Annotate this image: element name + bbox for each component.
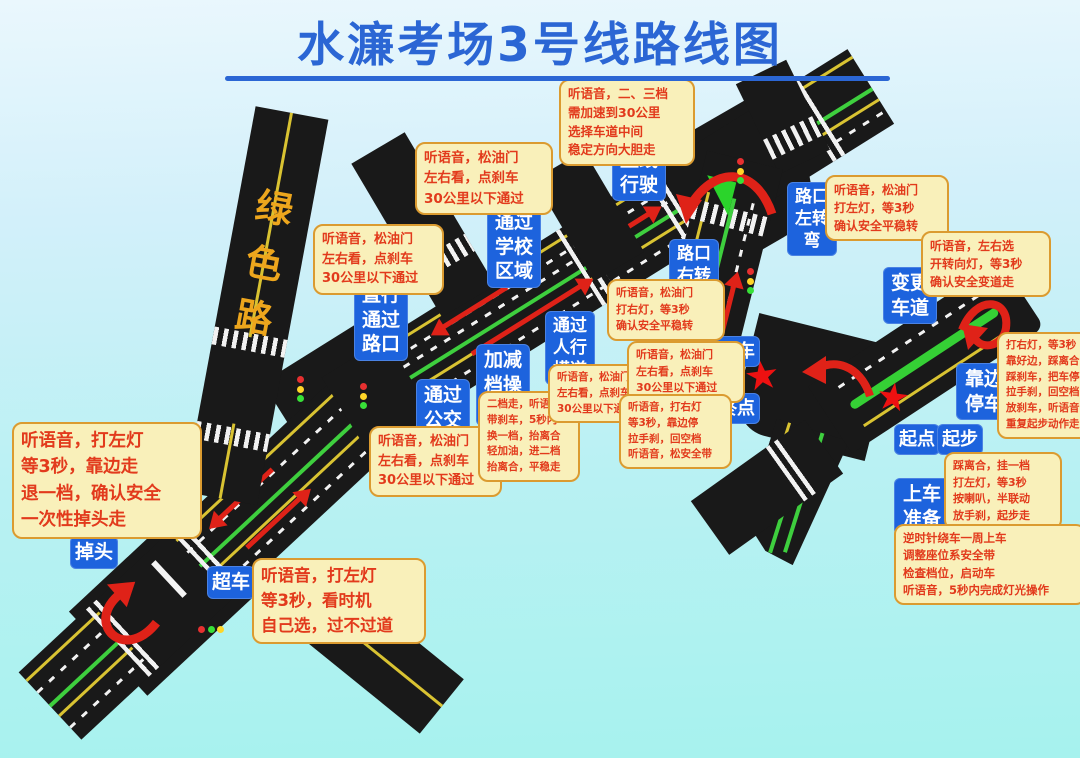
traffic-light (297, 376, 304, 402)
traffic-light (747, 268, 754, 294)
note-finish-stop-steps: 听语音，打右灯 等3秒，靠边停 拉手刹，回空档 听语音，松安全带 (619, 394, 732, 469)
note-speed-up: 听语音，二、三档 需加速到30公里 选择车道中间 稳定方向大胆走 (559, 79, 695, 166)
crosswalk (763, 115, 823, 159)
label-overtake: 超车 (207, 566, 255, 599)
label-u-turn: 掉头 (70, 536, 118, 569)
page-title: 水濂考场3号线路线图 (0, 6, 1080, 75)
traffic-light (737, 158, 744, 184)
note-pull-over-steps: 打右灯，等3秒 靠好边，踩离合 踩刹车，把车停 拉手刹，回空档 放刹车，听语音 … (997, 332, 1080, 439)
junction-turn-arrow (798, 348, 880, 410)
label-start-point: 起点 (894, 424, 940, 455)
left-turn-arc-arrow (668, 158, 788, 238)
route-map: 水濂考场3号线路线图 (0, 0, 1080, 758)
start-star: ★ (874, 376, 913, 418)
note-right-turn-steps: 听语音，松油门 打右灯，等3秒 确认安全平稳转 (607, 279, 725, 341)
traffic-light (360, 383, 367, 409)
note-start-move-steps: 踩离合，挂一档 打左灯，等3秒 按喇叭，半联动 放手刹，起步走 (944, 452, 1062, 530)
crosswalk (766, 437, 819, 501)
note-school-pass: 听语音，松油门 左右看，点刹车 30公里以下通过 (415, 142, 553, 215)
note-crossing-pass: 听语音，松油门 左右看，点刹车 30公里以下通过 (313, 224, 444, 295)
green-road-name: 绿色路 (228, 178, 300, 349)
note-boarding-steps: 逆时针绕车一周上车 调整座位系安全带 检查档位，启动车 听语音，5秒内完成灯光操… (894, 524, 1080, 605)
note-overtake-steps: 听语音，打左灯 等3秒，看时机 自己选，过不过道 (252, 558, 426, 644)
title-underline (225, 76, 890, 81)
note-lane-change-steps: 听语音，左右选 开转向灯，等3秒 确认安全变道走 (921, 231, 1051, 297)
label-school-zone: 通过学校区域 (487, 206, 541, 288)
traffic-light (198, 626, 224, 633)
note-u-turn-steps: 听语音，打左灯 等3秒，靠边走 退一档，确认安全 一次性掉头走 (12, 422, 202, 539)
label-start-move: 起步 (937, 424, 983, 455)
